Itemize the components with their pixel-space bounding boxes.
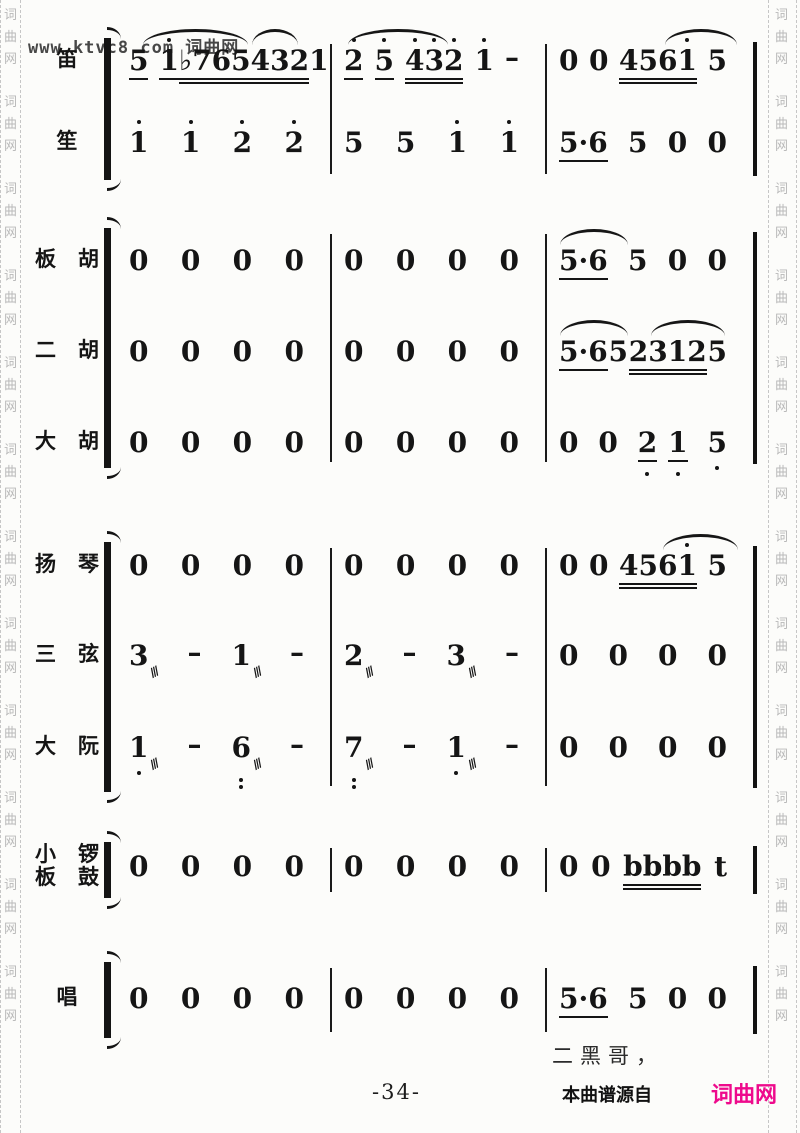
- note-digit: –: [505, 638, 519, 668]
- beat-cell: 0: [559, 46, 578, 76]
- slur-arc: [560, 229, 628, 245]
- note-digit: 0: [658, 641, 677, 671]
- note-digit: 0: [344, 337, 363, 367]
- note-token: 1: [309, 46, 328, 76]
- staff-row-dahu: 大胡0000000000215: [0, 428, 800, 464]
- staff-row-erhu: 二胡000000005·6523125: [0, 337, 800, 373]
- note-digit: 5: [639, 551, 658, 581]
- beat-cell: –: [505, 641, 519, 671]
- note-digit: 5: [628, 984, 647, 1014]
- beat-cell: –: [290, 641, 304, 671]
- note-digit: 0: [284, 428, 303, 458]
- note-token: 0: [233, 551, 252, 581]
- note-token: 0: [499, 551, 518, 581]
- note-token: 0: [129, 337, 148, 367]
- note-token: 0: [344, 852, 363, 882]
- note-digit: 3: [648, 337, 667, 367]
- note-digit: 0: [129, 337, 148, 367]
- staff-row-percussion: 小锣板鼓0000000000bbbbt: [0, 852, 800, 888]
- beat-cell: 0: [609, 641, 628, 671]
- beat-cell: 1: [309, 46, 328, 76]
- note-token: 0: [609, 641, 628, 671]
- measure-1: 0000: [115, 551, 330, 587]
- note-token: 1: [159, 46, 178, 80]
- note-digit: 0: [181, 337, 200, 367]
- beat-cell: 0: [609, 733, 628, 763]
- note-digit: 0: [559, 852, 578, 882]
- note-digit: 2: [687, 337, 706, 367]
- source-note: 本曲谱源自: [562, 1081, 652, 1107]
- beat-cell: 1: [499, 128, 518, 158]
- measure-1: 3///–1///–: [115, 641, 330, 677]
- beat-cell: 5: [628, 246, 647, 276]
- note-digit: 1: [499, 128, 518, 158]
- note-digit: 0: [448, 852, 467, 882]
- note-digit: ·: [578, 128, 588, 158]
- note-digit: 0: [559, 46, 578, 76]
- note-digit: 0: [559, 428, 578, 458]
- note-token: ♭765: [179, 46, 251, 84]
- note-token: 5: [396, 128, 415, 158]
- beat-cell: 0: [448, 852, 467, 882]
- note-token: 0: [284, 246, 303, 276]
- measure-3: 5·6500: [545, 246, 753, 282]
- instrument-label-daruan: 大阮: [35, 735, 99, 757]
- note-token: 0: [181, 984, 200, 1014]
- slur-arc: [560, 320, 628, 336]
- note-token: 7///: [344, 733, 373, 768]
- beat-cell: 0: [589, 46, 608, 76]
- note-token: 3///: [129, 641, 158, 676]
- beat-cell: 0: [668, 984, 687, 1014]
- measure-2: 0000: [330, 984, 545, 1020]
- note-token: 4561: [619, 551, 697, 589]
- beat-cell: 5·6: [559, 128, 608, 162]
- measure-2: 5511: [330, 128, 545, 164]
- note-digit: 0: [344, 551, 363, 581]
- instrument-label-sanxian: 三弦: [35, 643, 99, 665]
- tremolo-mark: ///: [461, 657, 481, 687]
- note-token: –: [403, 730, 417, 760]
- beat-cell: 0: [129, 246, 148, 276]
- beat-cell: –: [505, 733, 519, 763]
- note-token: 0: [284, 984, 303, 1014]
- note-digit: b: [643, 852, 663, 882]
- note-digit: 0: [284, 337, 303, 367]
- note-digit: 0: [284, 984, 303, 1014]
- note-digit: 6: [588, 246, 607, 276]
- beat-cell: 5·6: [559, 246, 608, 280]
- instrument-label-percussion: 小锣板鼓: [35, 843, 99, 888]
- note-token: 0: [396, 246, 415, 276]
- note-digit: 5: [396, 128, 415, 158]
- beat-cell: 51: [129, 46, 179, 80]
- note-digit: 0: [707, 246, 726, 276]
- note-token: 0: [708, 641, 727, 671]
- note-token: 0: [499, 984, 518, 1014]
- note-token: 2: [344, 46, 363, 80]
- note-digit: 0: [233, 852, 252, 882]
- measure-2: 0000: [330, 428, 545, 464]
- beat-cell: 0: [708, 733, 727, 763]
- instrument-label-text: 笛: [35, 48, 99, 70]
- measure-3: 5·6523125: [545, 337, 753, 373]
- measure-3: 5·6500: [545, 128, 753, 164]
- note-token: 1///: [129, 733, 158, 768]
- beat-cell: 0: [499, 551, 518, 581]
- beat-cell: 2312: [629, 337, 707, 375]
- beat-cell: 0: [181, 551, 200, 581]
- note-digit: 3: [424, 46, 443, 76]
- note-digit: 0: [396, 852, 415, 882]
- instrument-label-char: 阮: [78, 735, 99, 757]
- note-token: 0: [233, 428, 252, 458]
- note-token: 0: [284, 428, 303, 458]
- beat-cell: 0: [559, 733, 578, 763]
- beat-cell: 0: [396, 246, 415, 276]
- note-digit: 0: [344, 246, 363, 276]
- lyric-line: 二黑哥，: [552, 1040, 664, 1070]
- note-token: 5: [628, 984, 647, 1014]
- note-digit: 0: [344, 852, 363, 882]
- note-digit: 5: [639, 46, 658, 76]
- note-digit: 0: [233, 428, 252, 458]
- slur-arc: [663, 534, 738, 550]
- note-digit: 0: [181, 551, 200, 581]
- note-digit: 3: [446, 641, 465, 671]
- beat-cell: 0: [559, 641, 578, 671]
- beat-cell: –: [188, 641, 202, 671]
- tremolo-mark: ///: [246, 657, 266, 687]
- measure-2: 0000: [330, 246, 545, 282]
- beat-cell: 0: [181, 337, 200, 367]
- beat-cell: 0: [658, 733, 677, 763]
- beat-cell: 0: [499, 984, 518, 1014]
- note-digit: 2: [284, 128, 303, 158]
- note-digit: 2: [233, 128, 252, 158]
- note-token: 0: [396, 551, 415, 581]
- tremolo-mark: ///: [246, 749, 266, 779]
- beat-cell: –: [403, 641, 417, 671]
- beat-cell: 0: [181, 852, 200, 882]
- note-digit: 2: [344, 46, 363, 76]
- note-digit: b: [682, 852, 702, 882]
- staff-row-sheng: 笙112255115·6500: [0, 128, 800, 164]
- beat-cell: bbbb: [623, 852, 701, 890]
- slur-arc: [348, 29, 448, 45]
- note-digit: 0: [448, 337, 467, 367]
- beat-cell: 0: [499, 852, 518, 882]
- note-digit: 6: [212, 46, 231, 76]
- tremolo-mark: ///: [359, 749, 379, 779]
- note-digit: –: [290, 730, 304, 760]
- instrument-label-char: 笙: [57, 130, 78, 152]
- beat-cell: 0: [448, 246, 467, 276]
- beat-cell: 5: [396, 128, 415, 158]
- note-digit: 6: [588, 984, 607, 1014]
- note-token: 0: [181, 428, 200, 458]
- note-token: 0: [448, 984, 467, 1014]
- note-digit: 0: [708, 641, 727, 671]
- beat-cell: 0: [396, 337, 415, 367]
- beat-cell: 21: [638, 428, 688, 462]
- note-token: 5: [708, 46, 727, 76]
- instrument-label-di: 笛: [35, 48, 99, 70]
- beat-cell: 0: [181, 246, 200, 276]
- note-digit: –: [505, 43, 519, 73]
- note-token: 0: [708, 733, 727, 763]
- note-digit: 0: [396, 428, 415, 458]
- beat-cell: 0: [589, 551, 608, 581]
- note-token: 5: [628, 246, 647, 276]
- note-digit: 0: [499, 428, 518, 458]
- note-token: –: [505, 638, 519, 668]
- beat-cell: 5: [628, 984, 647, 1014]
- note-token: 0: [396, 337, 415, 367]
- note-digit: 2: [290, 46, 309, 76]
- note-token: 1: [668, 428, 687, 462]
- beat-cell: 0: [233, 852, 252, 882]
- note-digit: 0: [344, 984, 363, 1014]
- note-digit: 0: [129, 852, 148, 882]
- beat-cell: 1: [129, 128, 148, 158]
- note-digit: 0: [344, 428, 363, 458]
- note-token: 0: [344, 428, 363, 458]
- beat-cell: 0: [284, 551, 303, 581]
- beat-cell: 5: [609, 337, 628, 367]
- measure-3: 00bbbbt: [545, 852, 753, 888]
- note-token: 2: [233, 128, 252, 158]
- beat-cell: 4561: [619, 551, 697, 589]
- note-token: 5: [628, 128, 647, 158]
- note-token: 1: [474, 46, 493, 76]
- note-token: 1///: [231, 641, 260, 676]
- note-digit: 0: [129, 551, 148, 581]
- note-token: 0: [181, 337, 200, 367]
- note-digit: 0: [598, 428, 617, 458]
- note-digit: 5: [707, 337, 726, 367]
- note-digit: 5: [559, 128, 578, 158]
- beat-cell: t: [714, 852, 727, 882]
- instrument-label-char: 琴: [78, 553, 99, 575]
- score-page: 词曲网词曲网词曲网词曲网词曲网词曲网词曲网词曲网词曲网词曲网词曲网词曲网 词曲网…: [0, 0, 800, 1133]
- instrument-label-text: 三弦: [35, 643, 99, 665]
- note-digit: 1: [677, 551, 696, 581]
- measure-3: 0045615: [545, 551, 753, 587]
- note-digit: 0: [396, 984, 415, 1014]
- note-token: 2: [284, 128, 303, 158]
- note-digit: 2: [638, 428, 657, 458]
- note-token: –: [188, 730, 202, 760]
- beat-cell: 0: [448, 984, 467, 1014]
- note-digit: 0: [448, 551, 467, 581]
- note-token: 0: [658, 641, 677, 671]
- beat-cell: 0: [233, 551, 252, 581]
- note-token: 0: [344, 337, 363, 367]
- beat-cell: 0: [598, 428, 617, 458]
- note-digit: 4: [251, 46, 270, 76]
- note-token: 1: [129, 128, 148, 158]
- note-digit: 6: [588, 128, 607, 158]
- beat-cell: 5·6: [559, 337, 608, 371]
- beat-cell: 2: [344, 46, 363, 80]
- beat-cell: 2: [233, 128, 252, 158]
- beat-cell: 6///: [231, 733, 260, 768]
- note-digit: –: [188, 730, 202, 760]
- beat-cell: 0: [284, 984, 303, 1014]
- note-digit: 4: [619, 46, 638, 76]
- note-token: 0: [129, 984, 148, 1014]
- note-digit: 5: [609, 337, 628, 367]
- note-token: 0: [181, 246, 200, 276]
- note-digit: 0: [396, 551, 415, 581]
- staff-row-daruan: 大阮1///–6///–7///–1///–0000: [0, 733, 800, 769]
- instrument-label-banhu: 板胡: [35, 248, 99, 270]
- beat-cell: 0: [448, 551, 467, 581]
- measure-1: 1///–6///–: [115, 733, 330, 769]
- instrument-label-char: 三: [35, 643, 56, 665]
- beat-cell: 0: [284, 246, 303, 276]
- note-digit: 0: [559, 733, 578, 763]
- beat-cell: 0: [129, 428, 148, 458]
- note-token: 0: [559, 551, 578, 581]
- note-digit: 4: [405, 46, 424, 76]
- note-token: 0: [344, 984, 363, 1014]
- instrument-label-dahu: 大胡: [35, 430, 99, 452]
- note-digit: 5: [628, 246, 647, 276]
- note-digit: 0: [609, 641, 628, 671]
- note-digit: 6: [231, 733, 250, 763]
- measure-3: 0045615: [545, 46, 753, 82]
- note-token: 0: [668, 128, 687, 158]
- instrument-label-char: 板: [35, 248, 56, 270]
- note-token: 5: [344, 128, 363, 158]
- instrument-label-text: 大胡: [35, 430, 99, 452]
- instrument-label-yangqin: 扬琴: [35, 553, 99, 575]
- note-digit: 6: [588, 337, 607, 367]
- note-token: 0: [499, 337, 518, 367]
- note-token: 3///: [446, 641, 475, 676]
- instrument-label-char: 胡: [78, 248, 99, 270]
- measure-2: 0000: [330, 852, 545, 888]
- beat-cell: 0: [344, 852, 363, 882]
- beat-cell: 0: [591, 852, 610, 882]
- note-token: 5·6: [559, 337, 608, 371]
- measure-1: 0000: [115, 337, 330, 373]
- note-digit: –: [403, 638, 417, 668]
- note-digit: 0: [129, 984, 148, 1014]
- instrument-label-char: 扬: [35, 553, 56, 575]
- note-digit: 0: [559, 641, 578, 671]
- note-digit: 0: [181, 428, 200, 458]
- note-token: 0: [609, 733, 628, 763]
- note-digit: b: [662, 852, 682, 882]
- beat-cell: 0: [668, 128, 687, 158]
- note-token: 0: [499, 428, 518, 458]
- note-digit: ·: [578, 246, 588, 276]
- slur-arc: [651, 320, 725, 336]
- beat-cell: 432: [405, 46, 463, 84]
- beat-cell: 0: [129, 551, 148, 581]
- instrument-label-text: 板胡: [35, 248, 99, 270]
- instrument-label-char: 小: [35, 843, 56, 865]
- note-token: 0: [559, 641, 578, 671]
- beat-cell: 0: [396, 852, 415, 882]
- page-number: -34-: [372, 1080, 421, 1104]
- note-digit: 5: [628, 128, 647, 158]
- staff-row-di: 笛51♭7654321254321–0045615: [0, 46, 800, 82]
- note-digit: 1: [129, 733, 148, 763]
- note-token: 5: [707, 337, 726, 367]
- note-digit: 0: [129, 246, 148, 276]
- note-digit: –: [290, 638, 304, 668]
- beat-cell: 5: [708, 428, 727, 458]
- beat-cell: –: [403, 733, 417, 763]
- note-token: 4561: [619, 46, 697, 84]
- measure-1: 0000: [115, 246, 330, 282]
- beat-cell: 0: [233, 337, 252, 367]
- beat-cell: –: [188, 733, 202, 763]
- instrument-label-text: 小锣: [35, 843, 99, 865]
- beat-cell: 0: [284, 428, 303, 458]
- note-digit: 0: [233, 551, 252, 581]
- note-token: 0: [448, 852, 467, 882]
- note-digit: b: [623, 852, 643, 882]
- instrument-label-char: 大: [35, 735, 56, 757]
- measure-2: 7///–1///–: [330, 733, 545, 769]
- note-token: 0: [589, 46, 608, 76]
- beat-cell: 0: [668, 246, 687, 276]
- measure-2: 0000: [330, 551, 545, 587]
- note-digit: 1: [231, 641, 250, 671]
- note-token: 0: [589, 551, 608, 581]
- beat-cell: 0: [707, 984, 726, 1014]
- note-digit: ·: [578, 984, 588, 1014]
- instrument-label-char: 唱: [57, 986, 78, 1008]
- beat-cell: ♭765: [179, 46, 251, 84]
- note-token: 0: [499, 246, 518, 276]
- note-digit: –: [403, 730, 417, 760]
- note-digit: 4: [619, 551, 638, 581]
- note-digit: 0: [233, 984, 252, 1014]
- note-token: –: [403, 638, 417, 668]
- measure-2: 0000: [330, 337, 545, 373]
- note-token: –: [188, 638, 202, 668]
- note-token: 0: [559, 428, 578, 458]
- note-digit: 0: [609, 733, 628, 763]
- beat-cell: 1: [474, 46, 493, 76]
- instrument-label-char: 大: [35, 430, 56, 452]
- note-digit: 3: [270, 46, 289, 76]
- beat-cell: 0: [344, 246, 363, 276]
- measure-3: 0000: [545, 733, 753, 769]
- note-token: 5·6: [559, 246, 608, 280]
- note-digit: 0: [591, 852, 610, 882]
- note-digit: 0: [499, 246, 518, 276]
- tremolo-mark: ///: [359, 657, 379, 687]
- note-digit: 1: [448, 128, 467, 158]
- note-token: 432: [251, 46, 309, 84]
- staff-row-sanxian: 三弦3///–1///–2///–3///–0000: [0, 641, 800, 677]
- beat-cell: 1///: [446, 733, 475, 768]
- beat-cell: –: [505, 46, 519, 76]
- brand-logo[interactable]: 词曲网: [711, 1077, 777, 1109]
- beat-cell: 7///: [344, 733, 373, 768]
- staff-row-chang: 唱000000005·6500: [0, 984, 800, 1020]
- beat-cell: 1: [448, 128, 467, 158]
- beat-cell: 0: [181, 984, 200, 1014]
- note-digit: 0: [668, 984, 687, 1014]
